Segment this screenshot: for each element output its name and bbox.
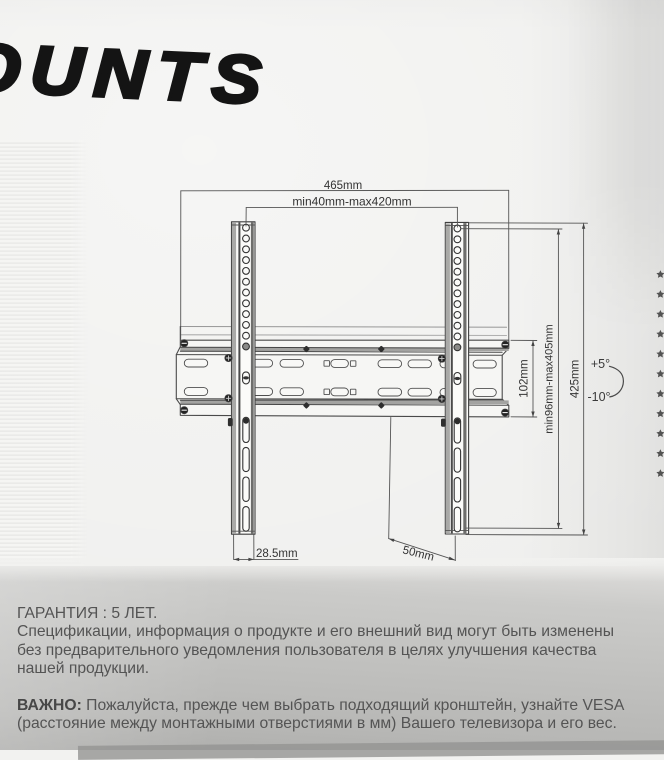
- svg-text:min96mm-max405mm: min96mm-max405mm: [544, 324, 556, 433]
- svg-text:-10°: -10°: [587, 390, 610, 404]
- svg-text:102mm: 102mm: [519, 359, 531, 397]
- svg-text:50mm: 50mm: [401, 544, 435, 563]
- svg-text:min40mm-max420mm: min40mm-max420mm: [292, 194, 411, 208]
- svg-text:28.5mm: 28.5mm: [256, 548, 298, 560]
- svg-text:+5°: +5°: [591, 357, 610, 371]
- svg-text:465mm: 465mm: [324, 180, 362, 192]
- svg-text:425mm: 425mm: [569, 360, 581, 398]
